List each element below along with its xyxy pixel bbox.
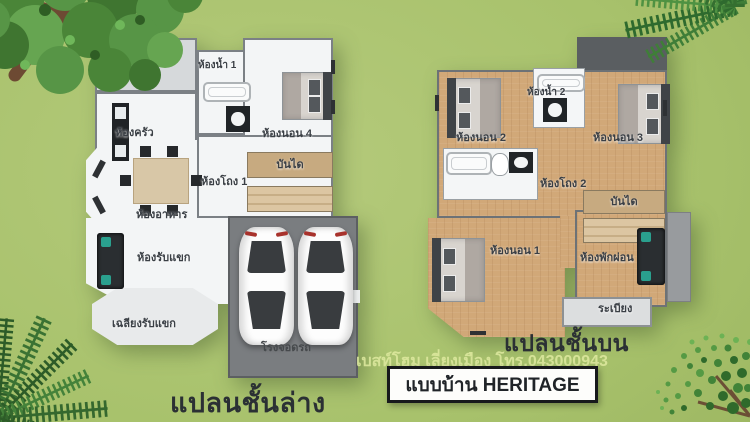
bedroom2-label: ห้องนอน 2 bbox=[456, 132, 506, 145]
toilet-icon bbox=[491, 153, 509, 176]
balcony-label: ระเบียง bbox=[598, 303, 632, 316]
palm-top-right-icon bbox=[585, 0, 750, 227]
bush-bottom-right-icon bbox=[638, 318, 750, 422]
bathtub-icon bbox=[446, 152, 492, 175]
lounge-label: ห้องพักผ่อน bbox=[580, 252, 634, 265]
site-plan-scene: บันได ซักล้าง ห้องน้ำ 1 ห้ bbox=[0, 0, 750, 422]
bathroom2-label: ห้องน้ำ 2 bbox=[527, 87, 565, 99]
bedroom1-label: ห้องนอน 1 bbox=[490, 245, 540, 258]
caption-ground-floor: แปลนชั้นล่าง bbox=[170, 381, 326, 422]
hall2-label: ห้องโถง 2 bbox=[540, 178, 586, 191]
sink-icon bbox=[509, 152, 533, 173]
sink-icon bbox=[543, 98, 567, 122]
palm-bottom-left-icon bbox=[0, 288, 157, 422]
bed-icon bbox=[447, 78, 501, 138]
house-model-label: แบบบ้าน HERITAGE bbox=[405, 370, 579, 400]
sofa-icon bbox=[637, 228, 665, 285]
tree-top-left-icon bbox=[0, 0, 265, 140]
window-icon bbox=[435, 95, 439, 111]
window-icon bbox=[470, 331, 486, 335]
bed-icon bbox=[432, 238, 485, 302]
house-model-badge: แบบบ้าน HERITAGE bbox=[387, 366, 598, 403]
